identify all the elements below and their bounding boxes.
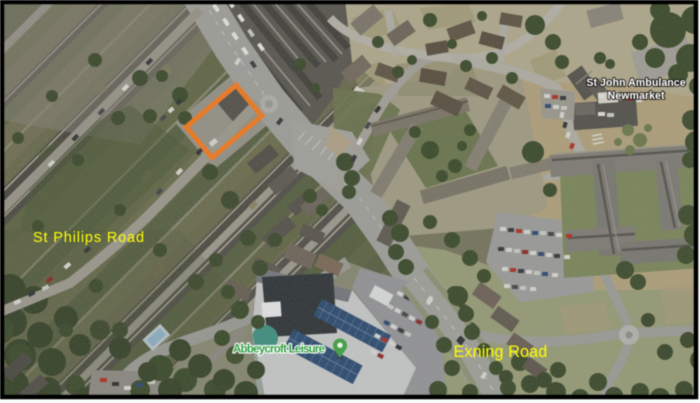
svg-text:Newmarket: Newmarket <box>607 90 664 102</box>
svg-text:St Philips Road: St Philips Road <box>33 230 145 246</box>
svg-text:Abbeycroft Leisure: Abbeycroft Leisure <box>233 344 325 356</box>
svg-text:St John Ambulance: St John Ambulance <box>586 77 685 89</box>
svg-text:Exning Road: Exning Road <box>454 343 548 361</box>
